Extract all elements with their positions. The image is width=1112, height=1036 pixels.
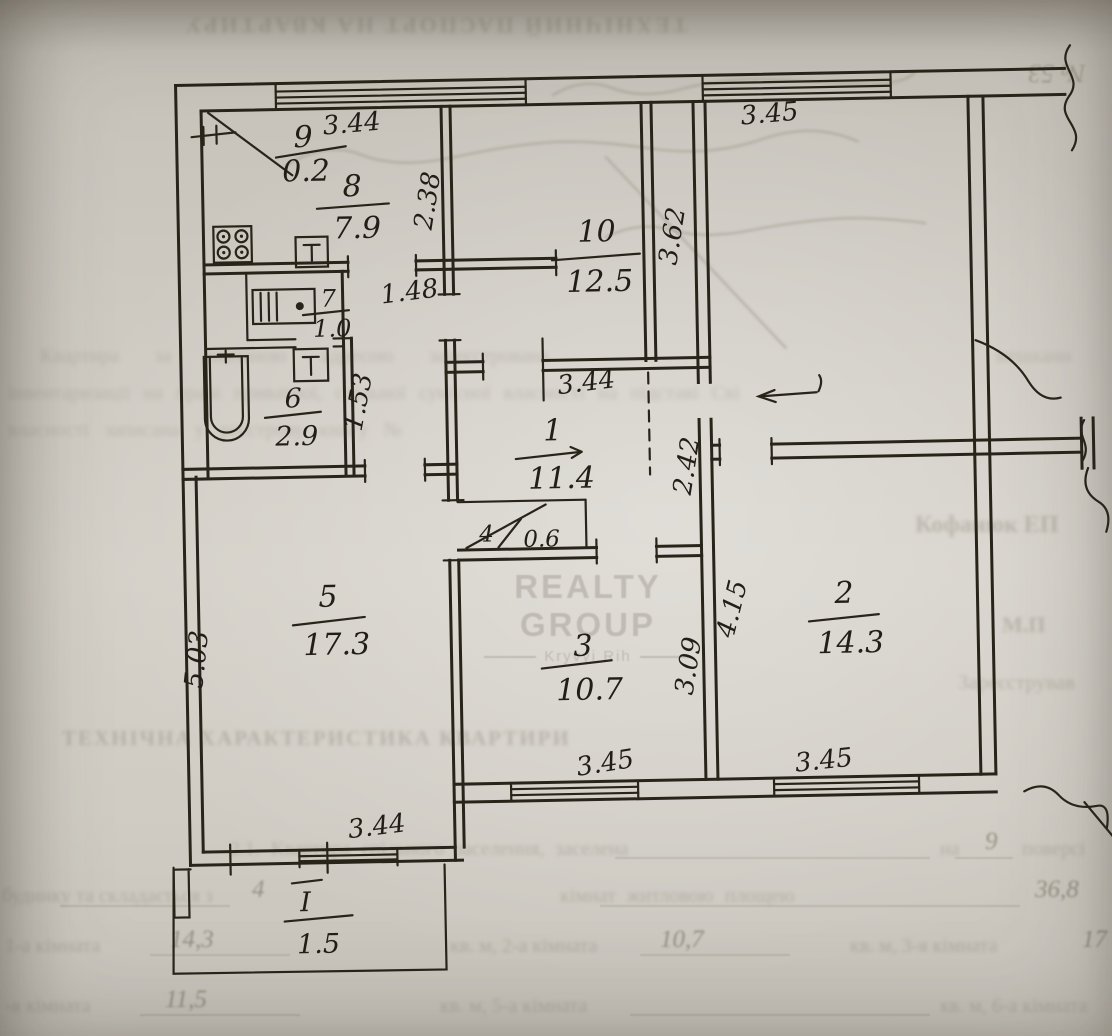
- room4-number: 4: [478, 521, 494, 547]
- dim-room5-window: 3.44: [346, 808, 407, 845]
- room4-area: 0.6: [523, 526, 560, 553]
- room10-number: 10: [577, 214, 616, 250]
- room9-area: 0.2: [282, 154, 330, 190]
- room7-area: 1.0: [313, 314, 352, 343]
- dim-top-window-left: 3.44: [321, 107, 381, 142]
- dim-kitchen-depth: 2.38: [409, 170, 448, 233]
- room7-number: 7: [320, 284, 337, 312]
- wall-break-top-right: [1064, 45, 1077, 150]
- room8-area: 7.9: [333, 211, 381, 247]
- window-room5: [230, 841, 398, 874]
- balcony-number: I: [299, 887, 313, 918]
- room6-number: 6: [284, 383, 302, 414]
- washbasin-icon: [252, 289, 315, 324]
- room10-area: 12.5: [566, 264, 633, 300]
- balcony-area: 1.5: [297, 929, 341, 961]
- room3-number: 3: [573, 629, 593, 664]
- room9-number: 9: [293, 120, 313, 155]
- room5-area: 17.3: [303, 627, 370, 663]
- room2-number: 2: [833, 576, 854, 611]
- balcony-break-right: [976, 338, 1109, 534]
- dim-kitchen-passage: 1.48: [379, 274, 440, 311]
- balcony-break-bottom-right: [1024, 785, 1112, 843]
- room3-area: 10.7: [556, 672, 624, 708]
- bathtub-icon: [204, 350, 250, 441]
- entrance-arrow-icon: [758, 375, 821, 402]
- room5-number: 5: [318, 579, 338, 614]
- scanned-technical-passport-page: ТЕХНІЧНИЙ ПАСПОРТ НА КВАРТИРУ № 53 Кварт…: [0, 0, 1112, 1036]
- room8-number: 8: [342, 169, 362, 204]
- room1-area: 11.4: [528, 461, 595, 497]
- dim-top-window-right: 3.45: [739, 97, 799, 132]
- dim-hall-length: 3.44: [556, 364, 617, 401]
- dim-room3-depth: 3.09: [670, 635, 709, 697]
- stove-icon: [213, 226, 252, 263]
- room2-area: 14.3: [817, 625, 884, 661]
- room1-number: 1: [543, 413, 563, 448]
- toilet-icon: [294, 349, 329, 382]
- dim-room3-window: 3.45: [574, 744, 636, 783]
- room6-area: 2.9: [274, 421, 319, 453]
- vent-shaft-icon: [191, 111, 292, 177]
- dim-room2-window: 3.45: [793, 743, 854, 779]
- dim-room5-depth: 5.03: [179, 629, 215, 690]
- dim-room2-depth: 4.15: [711, 577, 754, 641]
- floor-plan: 9 0.2 8 7.9 10 12.5 7 1.0 6 2.9 1 11.4: [0, 0, 1112, 1036]
- interior-walls: [176, 94, 1089, 865]
